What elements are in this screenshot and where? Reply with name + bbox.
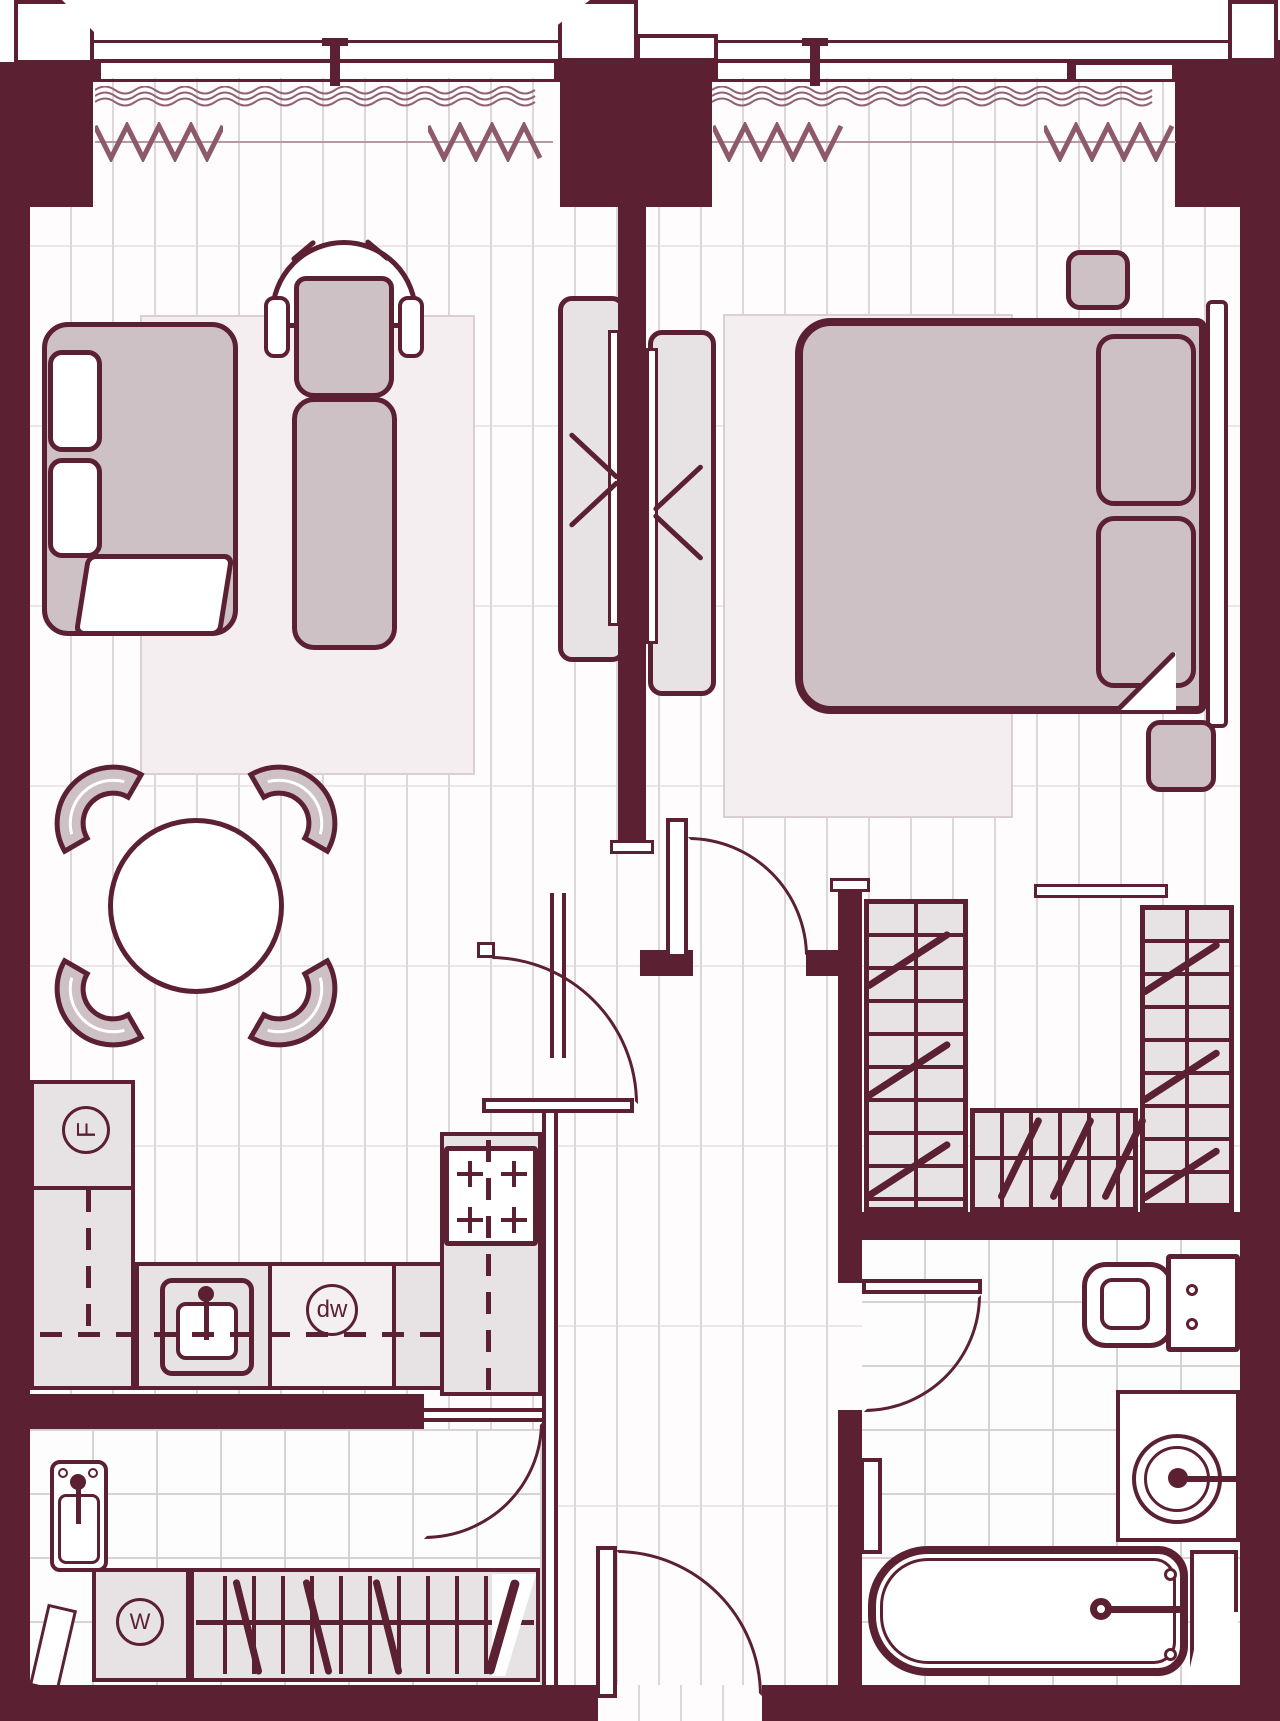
wall-cabinet-dashed-line bbox=[86, 1190, 91, 1332]
tub-handle bbox=[1164, 1648, 1177, 1661]
toilet-bowl-inner bbox=[1100, 1278, 1150, 1330]
utility-tap bbox=[88, 1468, 98, 1478]
wall-bottom bbox=[0, 1685, 598, 1721]
wall-cabinet-dashed-line bbox=[40, 1332, 440, 1337]
hangers bbox=[198, 1576, 494, 1674]
radiator-icon bbox=[1044, 122, 1177, 162]
armchair-wing bbox=[398, 296, 424, 358]
window-mullion bbox=[810, 44, 820, 86]
sofa-cushion bbox=[48, 458, 102, 558]
utility-door-leaf bbox=[420, 1408, 546, 1422]
closet-shelf-divider bbox=[1185, 910, 1189, 1207]
sofa-cushion bbox=[48, 350, 102, 452]
basin-faucet-stem bbox=[1176, 1476, 1238, 1482]
tub-spout bbox=[1108, 1606, 1182, 1613]
sofa-throw bbox=[74, 554, 235, 636]
nightstand bbox=[1146, 720, 1216, 792]
wall-closet-left bbox=[838, 886, 862, 1212]
coffee-table bbox=[292, 397, 397, 650]
wall-right bbox=[1240, 62, 1280, 1721]
toilet-cistern bbox=[1166, 1254, 1240, 1352]
window-handle bbox=[802, 38, 828, 46]
window-handle bbox=[322, 38, 348, 46]
wall-cabinet-dashed-line bbox=[486, 1140, 491, 1390]
bedroom-door-leaf bbox=[666, 818, 688, 958]
facade-column bbox=[558, 0, 638, 62]
stove bbox=[444, 1146, 538, 1246]
flush-button bbox=[1186, 1284, 1198, 1296]
wall-left bbox=[0, 62, 30, 1721]
wall-end-cap bbox=[610, 840, 654, 854]
headboard bbox=[1206, 300, 1228, 728]
wall-end-cap bbox=[830, 878, 870, 892]
wall-stub bbox=[806, 950, 840, 976]
wardrobe-unit-bedroom bbox=[648, 330, 716, 696]
closet-threshold bbox=[1034, 884, 1168, 898]
armchair-wing bbox=[264, 296, 290, 358]
window-living bbox=[93, 60, 562, 82]
facade-column bbox=[14, 0, 94, 64]
fridge-label: F bbox=[71, 1122, 102, 1138]
curtain-waves bbox=[95, 86, 553, 108]
wall-bottom bbox=[762, 1685, 1280, 1721]
pillow bbox=[1096, 516, 1196, 688]
curtain-waves bbox=[712, 86, 1175, 108]
wall-bathroom-left bbox=[838, 1240, 862, 1283]
facade-column bbox=[1228, 0, 1278, 62]
burner-icon bbox=[457, 1207, 483, 1233]
window-mullion bbox=[330, 44, 340, 86]
wall-bathroom-left bbox=[838, 1410, 862, 1685]
facade-column bbox=[636, 34, 718, 62]
wall-column-center bbox=[560, 62, 712, 207]
hall-door-leaf bbox=[482, 1098, 634, 1113]
washer-label: W bbox=[130, 1609, 151, 1635]
dishwasher-label: dw bbox=[317, 1296, 348, 1324]
wall-utility-top bbox=[30, 1394, 424, 1429]
wall-divider bbox=[618, 207, 646, 850]
wall-bathroom-top bbox=[838, 1212, 1240, 1240]
washer-label-circle: W bbox=[116, 1598, 164, 1646]
radiator-icon bbox=[428, 122, 546, 162]
armchair-seat bbox=[294, 276, 394, 398]
burner-icon bbox=[501, 1207, 527, 1233]
window-spandrel bbox=[1073, 62, 1175, 82]
burner-icon bbox=[501, 1161, 527, 1187]
window-bedroom bbox=[710, 60, 1075, 82]
dishwasher-label-circle: dw bbox=[306, 1284, 358, 1336]
burner-icon bbox=[457, 1161, 483, 1187]
utility-faucet-stem bbox=[76, 1486, 81, 1524]
dining-table bbox=[108, 818, 284, 994]
floor-plan: F dw bbox=[0, 0, 1280, 1721]
flush-button bbox=[1186, 1318, 1198, 1330]
entry-door-leaf bbox=[596, 1546, 617, 1698]
towel-radiator bbox=[860, 1458, 882, 1554]
stud-wall-kitchen bbox=[542, 1110, 558, 1685]
radiator-icon bbox=[713, 122, 843, 162]
utility-tap bbox=[58, 1468, 68, 1478]
nightstand bbox=[1066, 250, 1130, 310]
closet-bench-shelf bbox=[975, 1156, 1133, 1160]
wardrobe-panel bbox=[646, 348, 658, 644]
pillow bbox=[1096, 334, 1196, 506]
bathroom-door-leaf bbox=[862, 1279, 982, 1294]
fridge-label-circle: F bbox=[62, 1106, 110, 1154]
radiator-icon bbox=[95, 122, 223, 162]
tub-handle bbox=[1164, 1568, 1177, 1581]
wall-corner-tl bbox=[0, 62, 93, 207]
